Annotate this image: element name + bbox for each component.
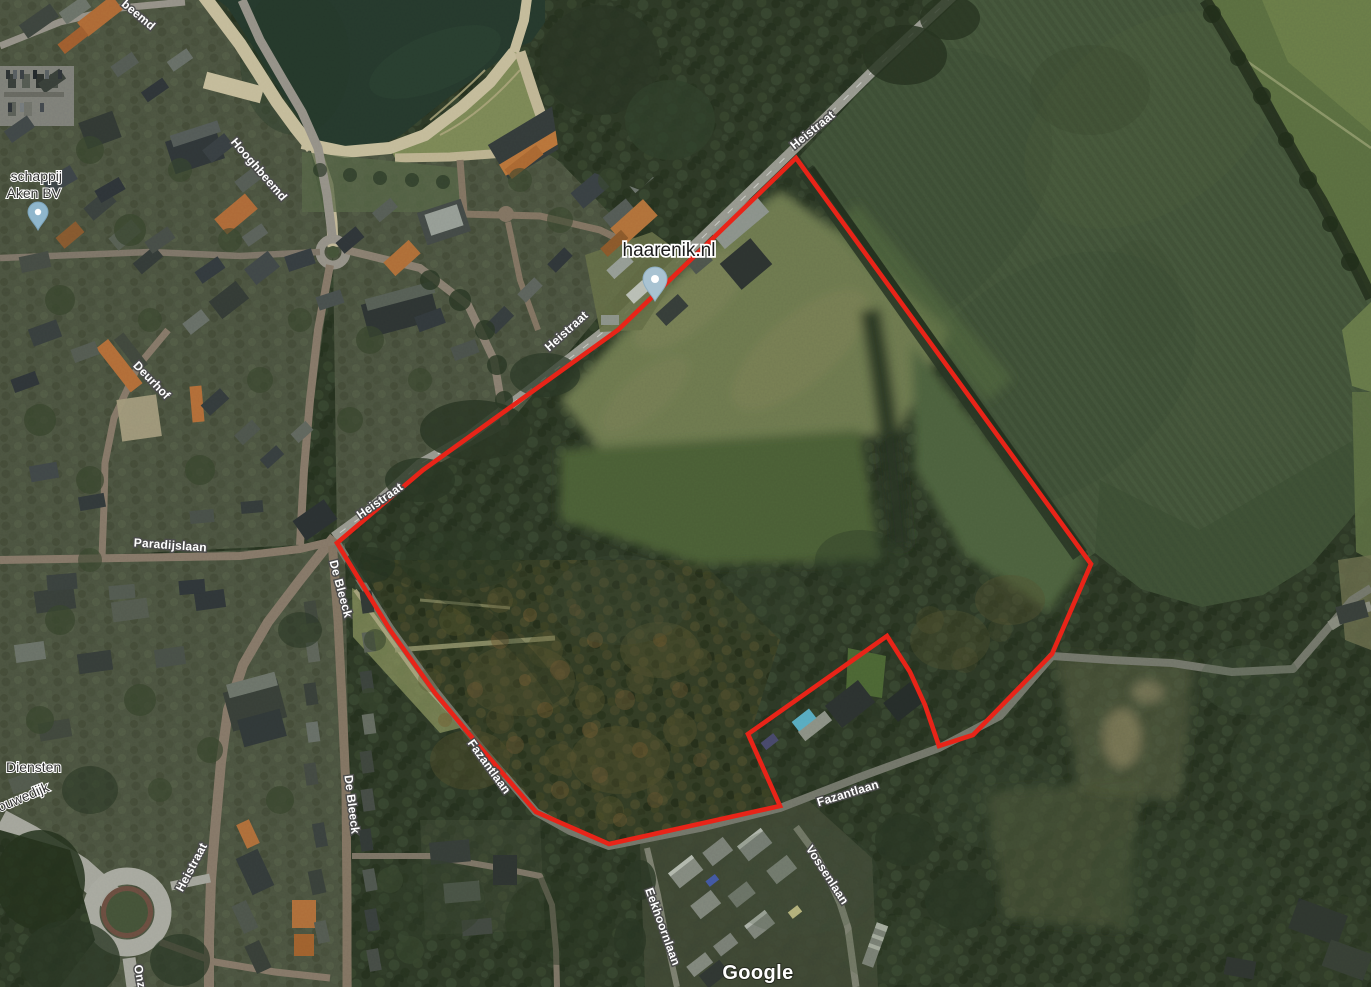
svg-text:Diensten: Diensten xyxy=(6,759,61,775)
svg-text:Aken BV: Aken BV xyxy=(7,185,62,201)
svg-text:schappij: schappij xyxy=(11,168,62,184)
svg-text:haarenik.nl: haarenik.nl xyxy=(623,240,716,261)
svg-text:Google: Google xyxy=(722,962,793,984)
